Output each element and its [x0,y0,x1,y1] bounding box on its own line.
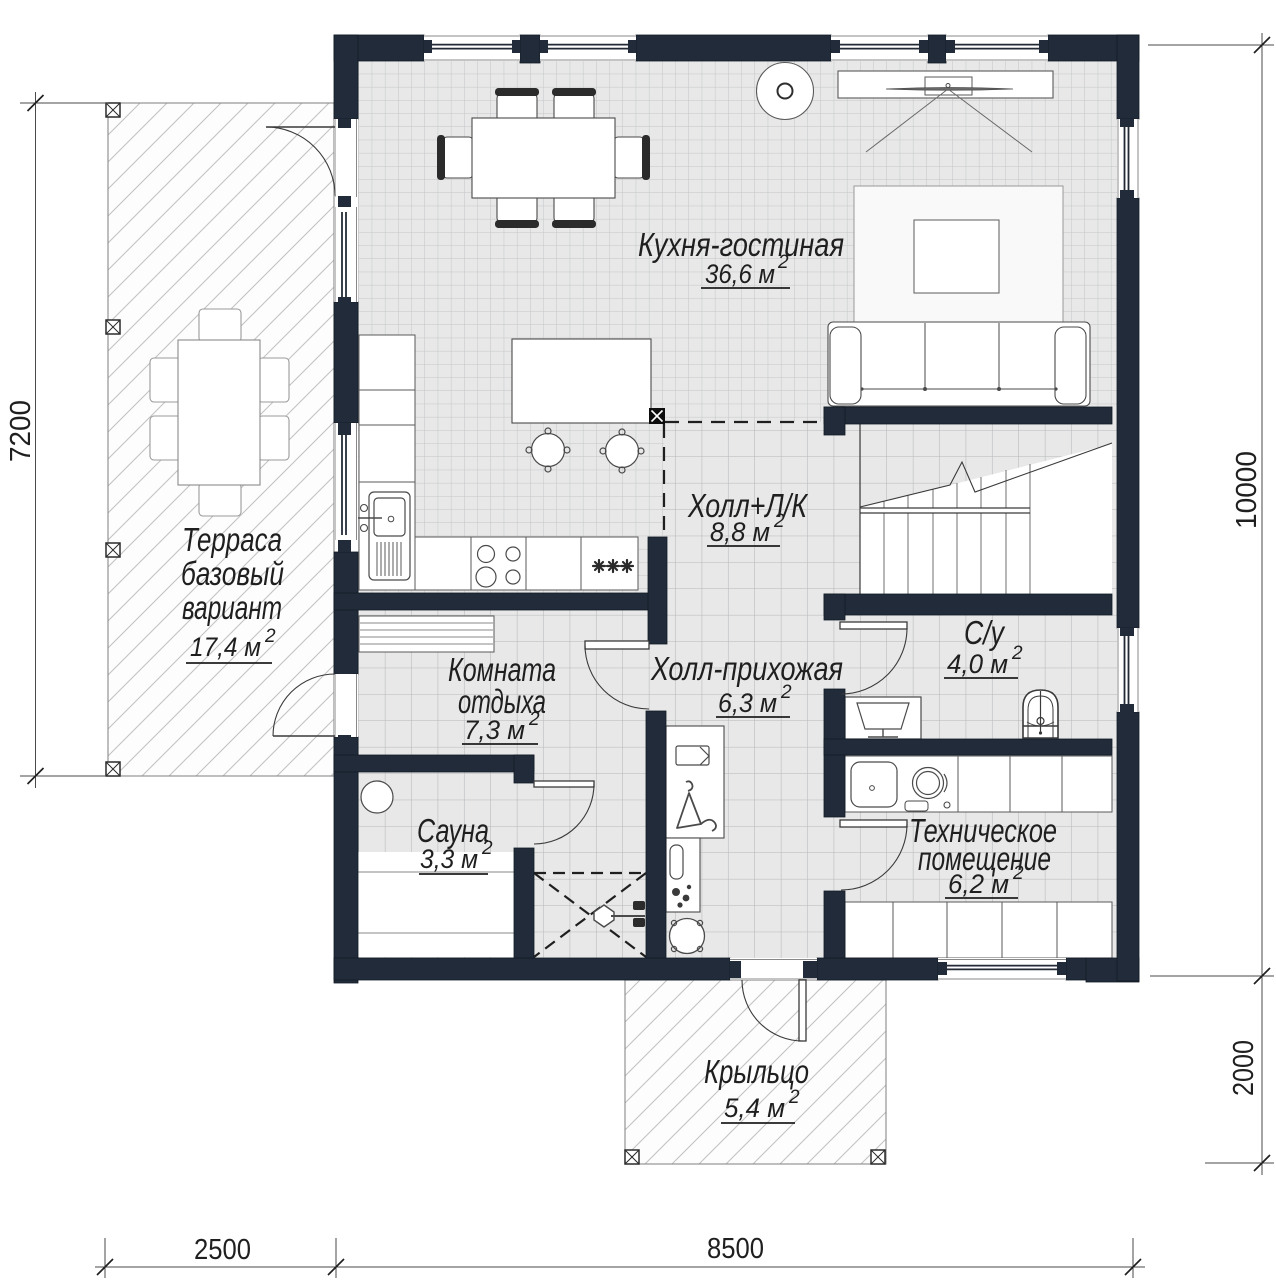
svg-text:2: 2 [777,252,789,273]
svg-text:2: 2 [528,709,540,730]
svg-text:2: 2 [1011,643,1023,664]
svg-text:7200: 7200 [5,400,37,462]
svg-text:Холл-прихожая: Холл-прихожая [650,650,843,687]
svg-text:8500: 8500 [707,1233,764,1265]
svg-text:5,4 м: 5,4 м [724,1093,785,1123]
svg-text:6,3 м: 6,3 м [718,688,777,718]
svg-text:2000: 2000 [1228,1040,1260,1096]
svg-text:2: 2 [780,682,792,703]
svg-text:Крыльцо: Крыльцо [704,1053,809,1090]
svg-text:8,8 м: 8,8 м [710,517,770,547]
svg-text:Терраса: Терраса [182,521,282,558]
svg-text:3,3 м: 3,3 м [420,844,478,874]
svg-text:10000: 10000 [1231,451,1263,529]
svg-text:2: 2 [481,838,493,859]
svg-text:6,2 м: 6,2 м [948,869,1009,899]
svg-text:36,6 м: 36,6 м [705,259,775,289]
svg-text:17,4 м: 17,4 м [190,632,261,662]
svg-text:2: 2 [773,511,785,532]
svg-text:базовый: базовый [181,555,284,592]
svg-text:2: 2 [788,1087,800,1108]
svg-text:С/у: С/у [964,614,1006,651]
svg-text:4,0 м: 4,0 м [947,649,1008,679]
svg-text:2: 2 [264,626,276,647]
svg-text:2: 2 [1012,863,1024,884]
svg-text:2500: 2500 [194,1234,251,1266]
svg-text:вариант: вариант [182,589,282,626]
svg-text:Кухня-гостиная: Кухня-гостиная [638,226,844,263]
svg-text:7,3 м: 7,3 м [464,715,525,745]
